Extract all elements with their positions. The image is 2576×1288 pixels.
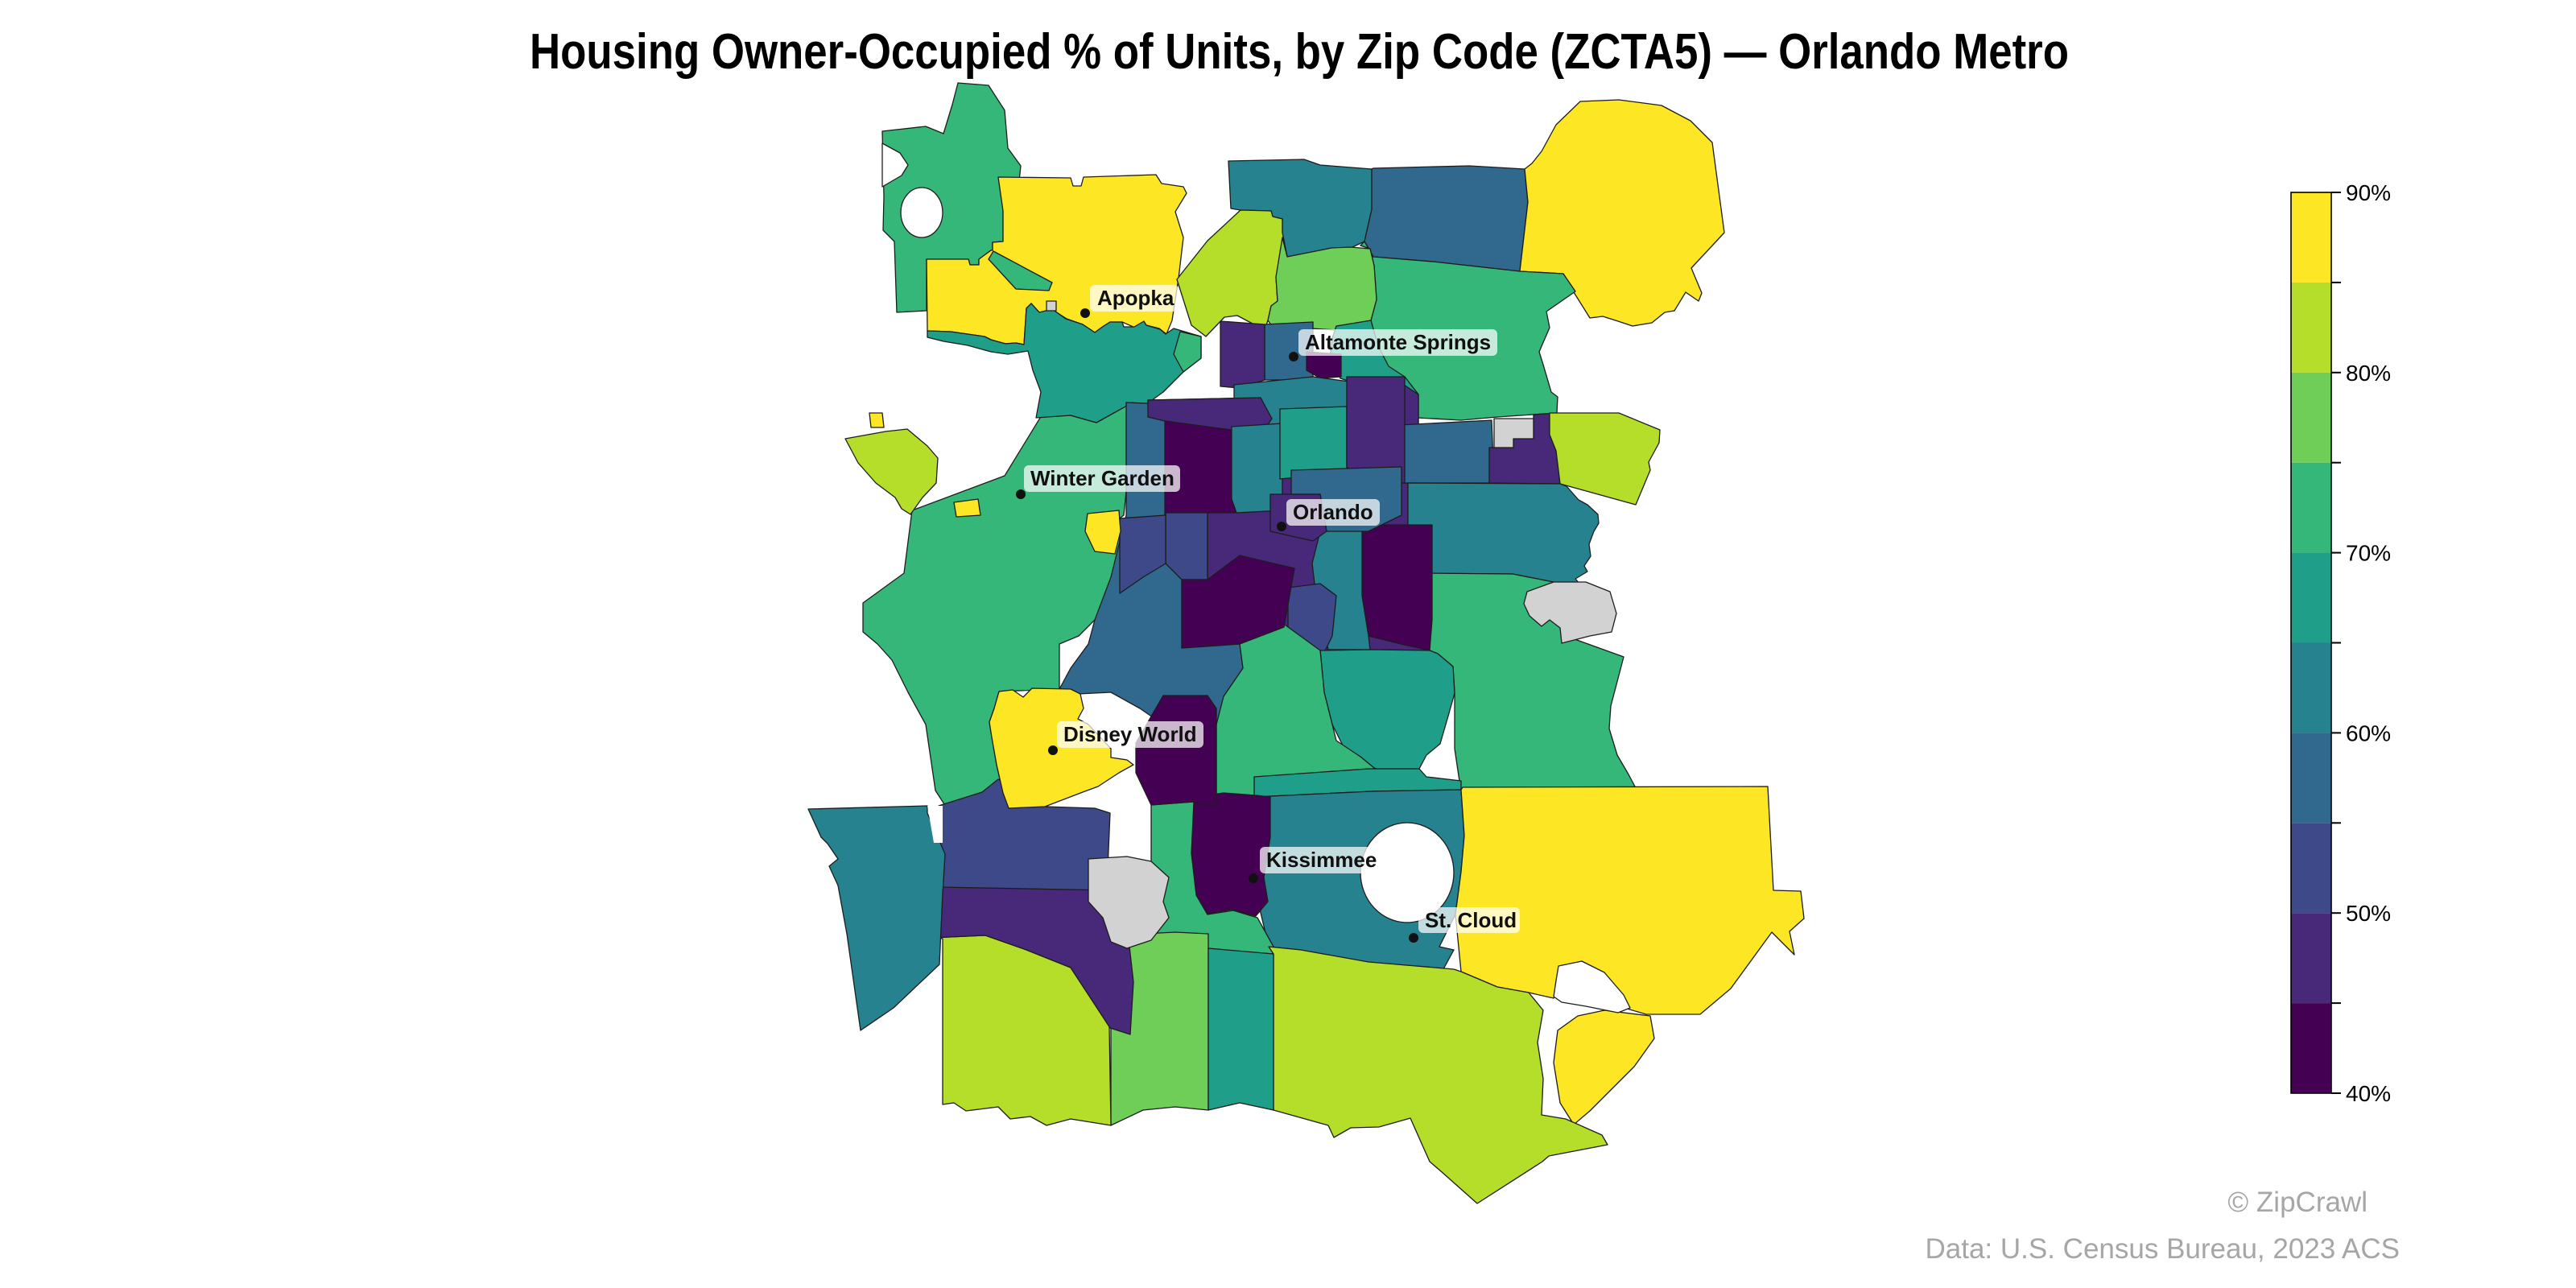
svg-text:Housing Owner-Occupied % of Un: Housing Owner-Occupied % of Units, by Zi… <box>530 24 2069 80</box>
svg-text:Apopka: Apopka <box>1097 286 1174 310</box>
svg-text:Orlando: Orlando <box>1293 500 1373 524</box>
svg-text:Kissimmee: Kissimmee <box>1266 848 1377 872</box>
svg-text:80%: 80% <box>2346 361 2391 386</box>
svg-text:90%: 90% <box>2346 180 2391 205</box>
svg-text:60%: 60% <box>2346 720 2391 745</box>
svg-text:St. Cloud: St. Cloud <box>1425 908 1517 932</box>
svg-text:Data: U.S. Census Bureau, 2023: Data: U.S. Census Bureau, 2023 ACS <box>1926 1233 2401 1265</box>
svg-text:Altamonte Springs: Altamonte Springs <box>1305 330 1491 354</box>
svg-text:70%: 70% <box>2346 541 2391 566</box>
svg-text:Winter Garden: Winter Garden <box>1030 466 1174 490</box>
svg-text:50%: 50% <box>2346 901 2391 926</box>
svg-text:Disney World: Disney World <box>1063 722 1197 746</box>
svg-text:© ZipCrawl: © ZipCrawl <box>2227 1187 2368 1218</box>
svg-text:40%: 40% <box>2346 1081 2391 1106</box>
